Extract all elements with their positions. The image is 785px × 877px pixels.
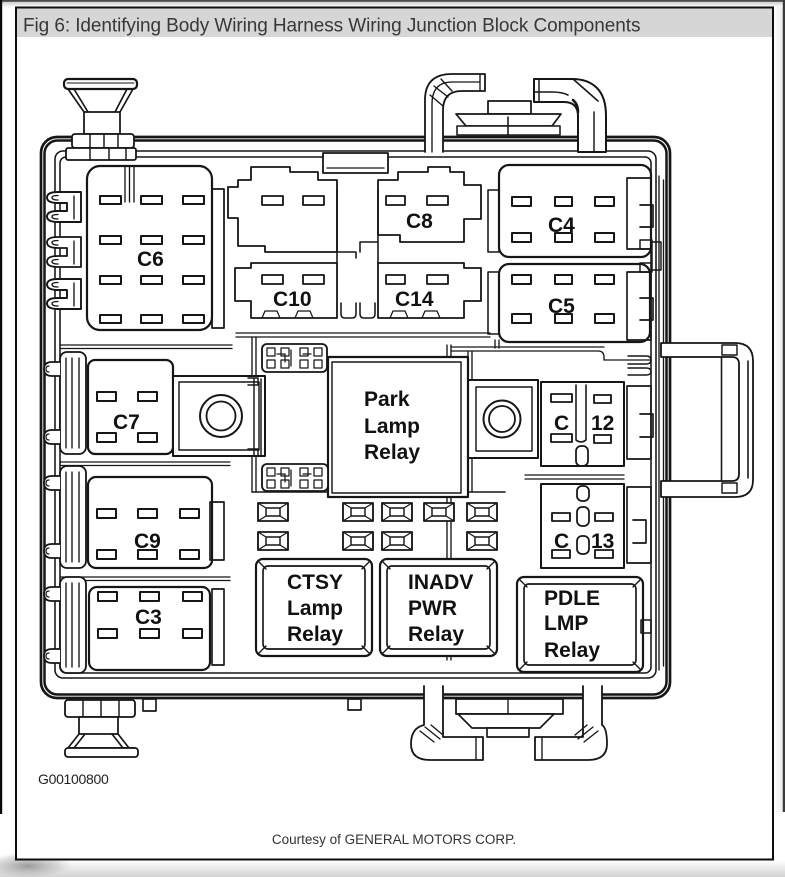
- svg-text:CTSY: CTSY: [287, 571, 343, 594]
- svg-text:Relay: Relay: [287, 623, 343, 646]
- svg-text:C9: C9: [134, 530, 161, 553]
- svg-text:C: C: [554, 412, 569, 435]
- svg-text:LMP: LMP: [544, 612, 588, 635]
- svg-text:Fig 6: Identifying Body Wiring: Fig 6: Identifying Body Wiring Harness W…: [23, 16, 640, 37]
- svg-text:13: 13: [591, 530, 614, 553]
- svg-text:C7: C7: [113, 411, 140, 434]
- svg-text:Relay: Relay: [364, 441, 420, 464]
- svg-text:C4: C4: [548, 214, 575, 237]
- svg-text:INADV: INADV: [408, 571, 473, 594]
- svg-text:Courtesy of GENERAL MOTORS COR: Courtesy of GENERAL MOTORS CORP.: [272, 832, 516, 847]
- svg-text:G00100800: G00100800: [38, 771, 109, 787]
- svg-text:C3: C3: [135, 606, 162, 629]
- svg-text:Relay: Relay: [408, 623, 464, 646]
- svg-text:C5: C5: [548, 295, 575, 318]
- svg-text:C8: C8: [406, 210, 433, 233]
- svg-text:Lamp: Lamp: [364, 415, 420, 438]
- svg-text:C: C: [554, 530, 569, 553]
- svg-text:Lamp: Lamp: [287, 597, 343, 620]
- svg-text:12: 12: [591, 412, 614, 435]
- svg-text:C10: C10: [273, 288, 312, 311]
- svg-text:Park: Park: [364, 388, 410, 411]
- svg-text:Relay: Relay: [544, 639, 600, 662]
- svg-text:C14: C14: [395, 288, 434, 311]
- svg-text:PWR: PWR: [408, 597, 457, 620]
- svg-text:PDLE: PDLE: [544, 587, 600, 610]
- svg-text:C6: C6: [137, 248, 164, 271]
